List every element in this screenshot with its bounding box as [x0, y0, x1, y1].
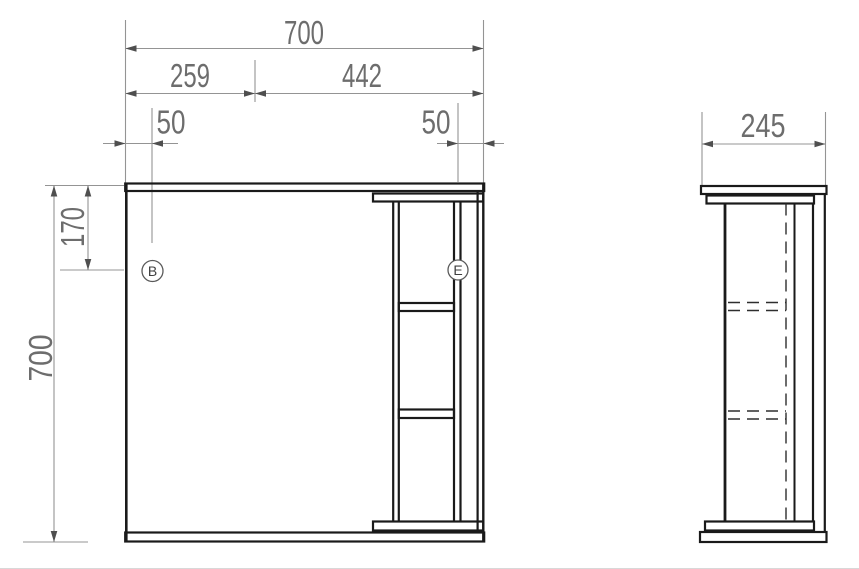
technical-drawing-canvas: 700 259 442 50 50 170 700 — [0, 0, 859, 569]
arrowhead-up — [51, 186, 58, 197]
arrowhead-right — [473, 90, 484, 97]
dim-top-offset: 170 — [54, 186, 91, 271]
dim-total-height: 700 — [22, 186, 59, 543]
side-sub-top-bar — [707, 196, 815, 204]
arrowhead-right — [152, 140, 163, 147]
front-bottom-panel — [125, 533, 484, 542]
side-top-panel — [701, 186, 827, 194]
extension-lines — [23, 20, 826, 542]
arrowhead-split-right — [255, 90, 266, 97]
marker-e: E — [448, 260, 468, 280]
shelf-lower — [399, 410, 454, 419]
marker-b: B — [142, 261, 163, 282]
arrowhead-left — [115, 140, 126, 147]
side-bottom-bar — [705, 522, 814, 531]
side-bottom-panel — [700, 532, 827, 542]
arrowhead-right — [815, 141, 826, 148]
arrowhead-left — [447, 140, 458, 147]
dim-label-depth: 245 — [741, 107, 786, 144]
front-view: B E — [125, 184, 484, 542]
arrowhead-left — [126, 90, 137, 97]
arrowhead-left — [126, 45, 137, 52]
marker-b-label: B — [148, 263, 157, 279]
arrowhead-split-left — [244, 90, 255, 97]
dim-left-offset: 50 — [103, 104, 186, 147]
front-top-panel — [125, 184, 484, 192]
arrowhead-up — [85, 186, 92, 197]
dim-label-total-width: 700 — [284, 14, 324, 51]
dim-label-right-offset: 50 — [422, 104, 451, 141]
shelf-upper — [399, 303, 454, 311]
dim-label-total-height: 700 — [22, 335, 59, 382]
arrowhead-right — [484, 140, 495, 147]
dim-label-top-offset: 170 — [54, 207, 91, 247]
arrowhead-left — [702, 141, 713, 148]
shelf-unit-bottom-bar — [373, 522, 483, 531]
dim-right-offset: 50 — [422, 104, 505, 147]
shelf-unit-top-bar — [373, 194, 483, 202]
marker-e-label: E — [453, 262, 462, 278]
dim-label-left-offset: 50 — [157, 104, 186, 141]
dim-depth: 245 — [702, 107, 826, 147]
arrowhead-down — [51, 531, 58, 542]
dim-door-and-shelf-width: 259 442 — [126, 57, 484, 97]
arrowhead-right — [473, 45, 484, 52]
dim-total-width: 700 — [126, 14, 484, 52]
dim-label-right-width: 442 — [342, 57, 382, 94]
cabinet-dimension-drawing: 700 259 442 50 50 170 700 — [0, 0, 859, 568]
arrowhead-down — [85, 259, 92, 270]
side-view — [700, 186, 827, 542]
dim-label-left-width: 259 — [170, 57, 210, 94]
